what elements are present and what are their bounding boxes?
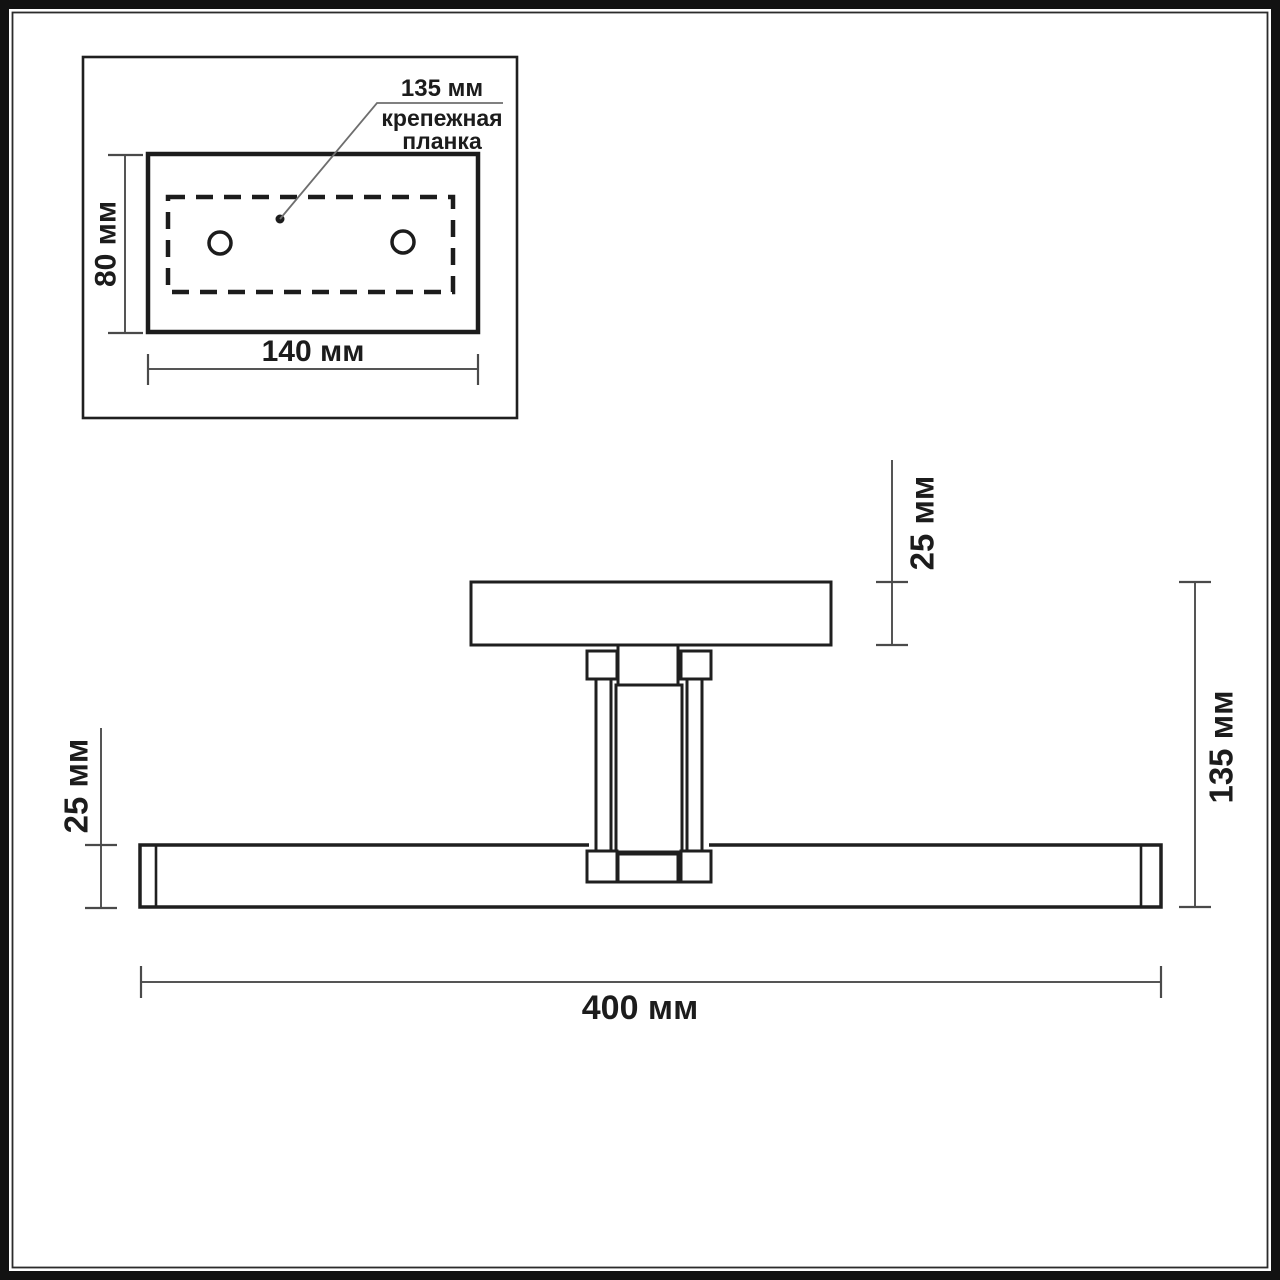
technical-drawing: 135 мм крепежная планка 80 мм 140 мм: [0, 0, 1280, 1280]
screw-hole-left: [209, 232, 231, 254]
canopy-plate: [471, 582, 831, 645]
left-post-bottom-flange: [587, 851, 617, 882]
fixture-height-label: 135 мм: [1203, 690, 1240, 803]
stem-column: [616, 685, 682, 852]
stem-bottom-block: [618, 854, 678, 882]
mounting-bar-caption-line2: планка: [402, 128, 482, 154]
inset-width-label: 140 мм: [262, 335, 365, 368]
bar-length-label: 400 мм: [582, 989, 698, 1027]
right-post-bottom-flange: [681, 851, 711, 882]
right-post-shaft: [687, 679, 702, 852]
right-post-top-flange: [681, 651, 711, 679]
stem-top-block: [618, 645, 678, 685]
left-post-shaft: [596, 679, 611, 852]
left-post-top-flange: [587, 651, 617, 679]
bar-thickness-label: 25 мм: [58, 739, 95, 834]
hole-spacing-label: 135 мм: [401, 75, 483, 102]
canopy-thickness-label: 25 мм: [904, 476, 941, 571]
inset-height-label: 80 мм: [90, 201, 123, 287]
screw-hole-right: [392, 231, 414, 253]
